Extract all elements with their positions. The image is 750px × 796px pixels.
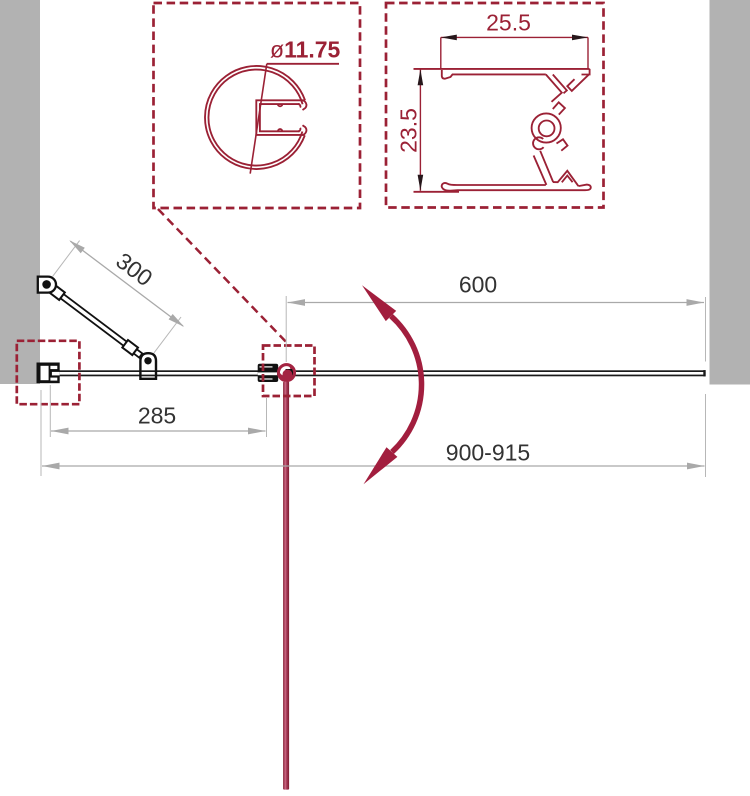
svg-text:600: 600 (459, 272, 497, 298)
svg-text:900-915: 900-915 (446, 440, 530, 466)
svg-text:285: 285 (138, 403, 176, 429)
svg-text:25.5: 25.5 (486, 10, 531, 36)
svg-text:ø11.75: ø11.75 (270, 37, 341, 63)
svg-text:23.5: 23.5 (396, 108, 422, 153)
svg-text:300: 300 (111, 247, 157, 291)
